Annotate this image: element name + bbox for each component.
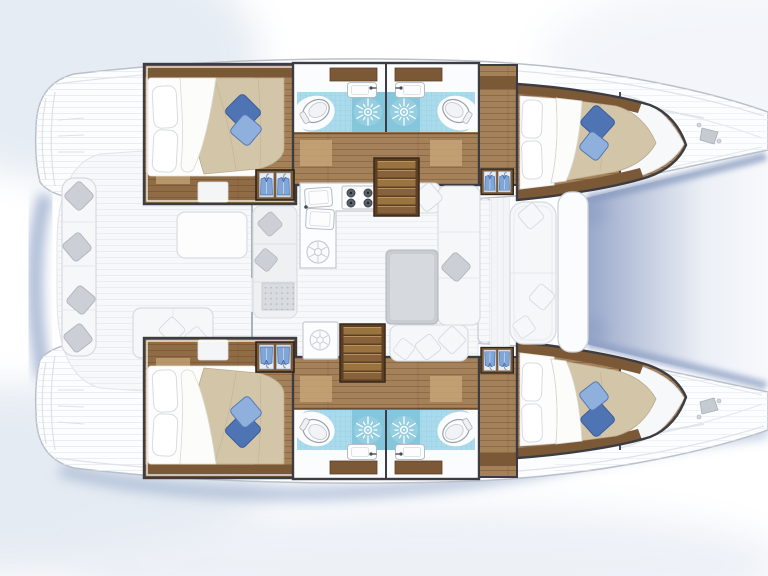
forward-crossbeam bbox=[558, 192, 588, 352]
catamaran-floorplan bbox=[0, 0, 768, 576]
forward-cockpit-deck bbox=[490, 198, 510, 346]
entrance-mat bbox=[262, 283, 294, 310]
cockpit-bench bbox=[62, 178, 97, 356]
staircase-starboard bbox=[340, 324, 385, 382]
staircase-port bbox=[374, 158, 419, 216]
galley-cabinet-aft bbox=[303, 322, 338, 359]
forward-lounge bbox=[510, 202, 556, 344]
stove bbox=[342, 186, 376, 209]
salon-sofa bbox=[253, 206, 297, 318]
cockpit-table bbox=[177, 212, 247, 258]
floorplan-page bbox=[0, 0, 768, 576]
